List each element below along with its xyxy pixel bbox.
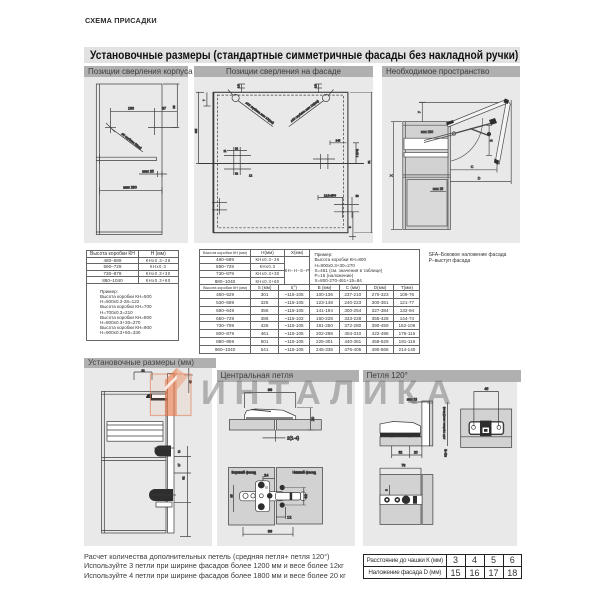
svg-text:Нижний фасад: Нижний фасад (292, 470, 315, 474)
svg-text:11: 11 (224, 149, 227, 153)
svg-text:ø5 глубина 5(мм): ø5 глубина 5(мм) (121, 132, 143, 150)
svg-text:345: 345 (336, 139, 341, 143)
svg-text:405: 405 (194, 128, 198, 133)
svg-text:9.5: 9.5 (237, 84, 241, 88)
svg-text:В: В (490, 139, 494, 142)
svg-text:32: 32 (235, 147, 239, 151)
svg-text:мин 290: мин 290 (123, 186, 136, 190)
svg-text:20: 20 (414, 451, 418, 455)
svg-text:12.5+КРЗ: 12.5+КРЗ (324, 193, 337, 197)
svg-text:95: 95 (172, 105, 176, 109)
svg-text:32: 32 (398, 451, 402, 455)
svg-text:50: 50 (356, 194, 360, 198)
svg-text:Верхний фасад: Верхний фасад (231, 470, 255, 474)
svg-text:37: 37 (162, 106, 166, 110)
svg-text:2(1-4): 2(1-4) (286, 436, 299, 441)
svg-text:С: С (471, 165, 474, 169)
svg-text:мин 25: мин 25 (142, 170, 153, 174)
svg-text:5: 5 (348, 226, 352, 228)
svg-text:11: 11 (177, 450, 181, 453)
svg-text:52: 52 (182, 476, 186, 480)
svg-text:45: 45 (484, 387, 488, 391)
svg-text:32: 32 (302, 493, 307, 498)
svg-text:35: 35 (229, 494, 233, 498)
svg-text:7: 7 (202, 99, 206, 101)
svg-text:9.5: 9.5 (314, 84, 318, 88)
svg-text:мин 25: мин 25 (433, 187, 444, 191)
svg-text:ø10 глубина мин 12(мм): ø10 глубина мин 12(мм) (290, 99, 320, 123)
svg-text:32: 32 (235, 172, 239, 176)
svg-text:81: 81 (367, 160, 371, 164)
svg-text:мин 280: мин 280 (421, 130, 434, 134)
svg-text:2 (2-5): 2 (2-5) (355, 149, 359, 157)
svg-text:190: 190 (128, 106, 134, 110)
svg-text:У: У (418, 110, 422, 113)
svg-text:24: 24 (263, 472, 268, 477)
svg-text:D: D (478, 177, 481, 181)
svg-text:ø10 глубина мин 12(мм): ø10 глубина мин 12(мм) (245, 101, 275, 125)
svg-text:17: 17 (177, 463, 181, 467)
svg-text:К(3-6): К(3-6) (443, 449, 447, 457)
svg-text:89: 89 (267, 529, 272, 534)
svg-text:Х: Х (389, 174, 393, 177)
svg-text:20: 20 (309, 416, 314, 421)
svg-text:12: 12 (286, 514, 291, 519)
svg-text:12: 12 (249, 174, 253, 178)
svg-text:78: 78 (401, 464, 405, 468)
svg-text:32: 32 (141, 368, 145, 372)
